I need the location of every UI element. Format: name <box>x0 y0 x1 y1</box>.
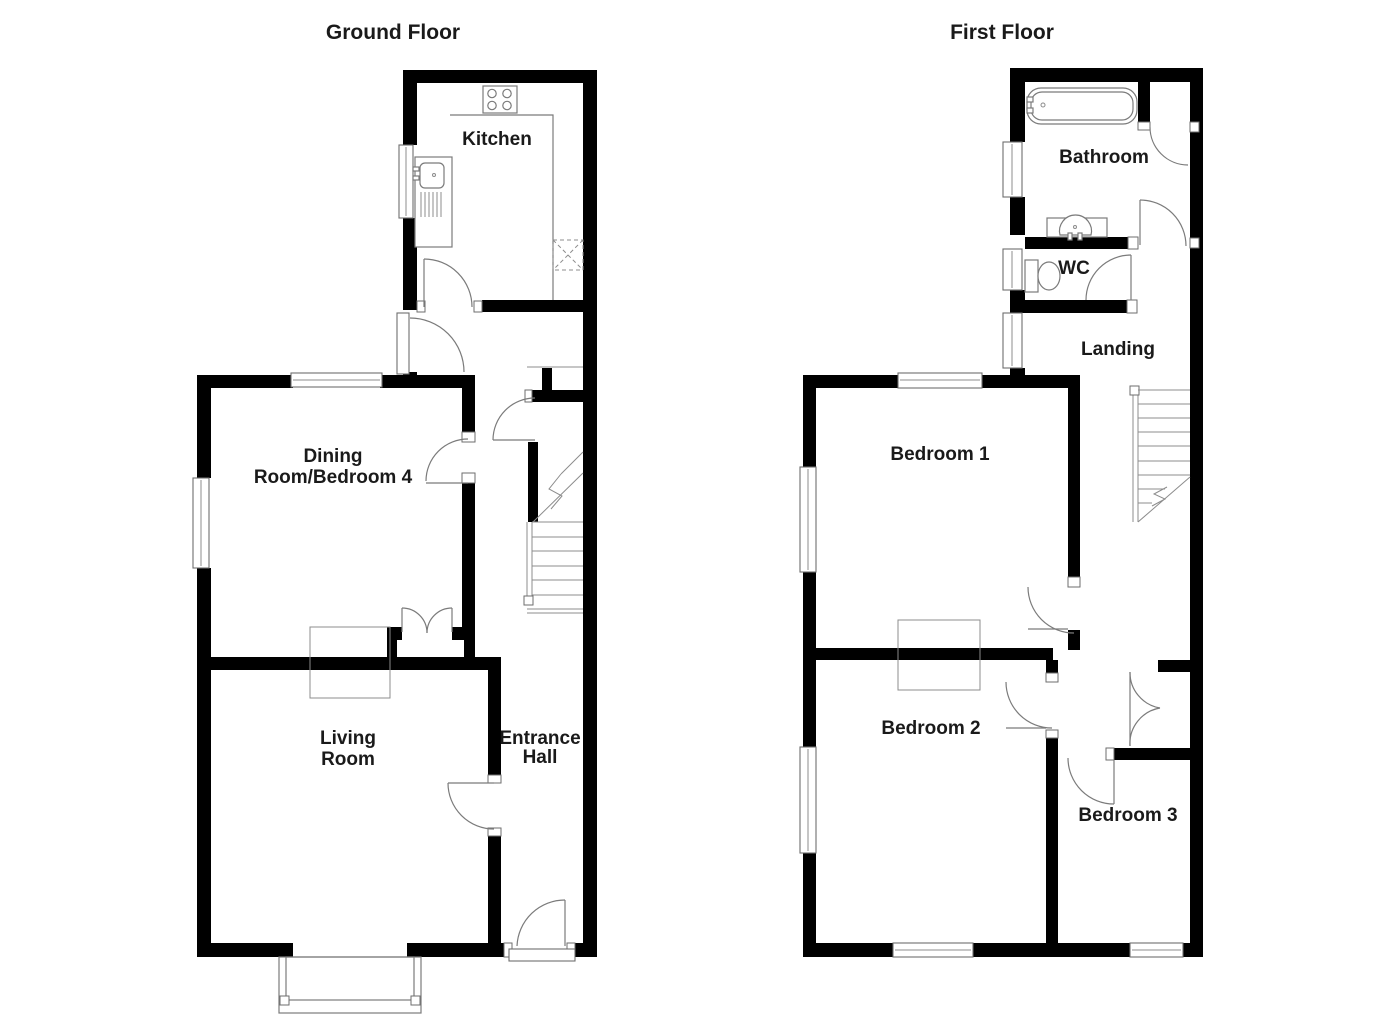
first-floor-plan: First Floor <box>800 21 1203 957</box>
bedroom2-label: Bedroom 2 <box>881 718 980 739</box>
ground-floor-title: Ground Floor <box>326 21 460 44</box>
floorplan-page: Ground Floor <box>0 0 1400 1018</box>
hall-label-line1: Entrance <box>499 728 580 749</box>
bedroom2-left-window <box>800 747 816 853</box>
bedroom1-left-window <box>800 467 816 572</box>
bedroom1-top-window <box>898 373 982 388</box>
bedroom2-door <box>1006 682 1052 728</box>
wc-door <box>1086 255 1131 300</box>
bath-icon <box>1027 88 1137 124</box>
wc-label: WC <box>1058 258 1090 279</box>
bathroom-door <box>1140 200 1186 246</box>
airing-cupboard-door <box>1150 127 1188 165</box>
kitchen-window <box>399 145 413 218</box>
side-door <box>397 313 464 374</box>
living-room-door <box>448 783 494 829</box>
first-floor-title: First Floor <box>950 21 1054 44</box>
wc-window <box>1003 249 1022 290</box>
living-label-line1: Living <box>320 728 376 749</box>
hall-label-line2: Hall <box>523 747 558 768</box>
bedroom3-label: Bedroom 3 <box>1078 805 1177 826</box>
living-label-line2: Room <box>321 749 375 770</box>
bedroom2-bottom-window <box>893 943 973 957</box>
bedroom1-label: Bedroom 1 <box>890 444 990 465</box>
hob-icon <box>483 86 517 113</box>
landing-label: Landing <box>1081 339 1155 360</box>
dining-label-line2: Room/Bedroom 4 <box>254 467 413 488</box>
bay-window <box>279 957 421 1013</box>
bathroom-label: Bathroom <box>1059 147 1149 168</box>
cupboard-double-doors <box>402 608 452 633</box>
floorplan-drawing: Ground Floor <box>0 0 1400 1018</box>
front-door <box>509 900 575 961</box>
dining-label-line1: Dining <box>303 446 362 467</box>
sink-drainer-icon <box>413 157 452 247</box>
landing-cupboard-doors <box>1130 672 1160 746</box>
dining-left-window <box>193 478 209 568</box>
ground-walls <box>197 70 597 957</box>
appliance-space-icon <box>553 240 583 270</box>
ground-floor-plan: Ground Floor <box>193 21 597 1013</box>
bedroom1-door <box>1028 587 1074 633</box>
kitchen-door <box>424 259 472 307</box>
bedroom3-bottom-window <box>1130 943 1183 957</box>
hall-inner-door <box>493 398 535 440</box>
dining-top-window <box>291 373 382 387</box>
bathroom-window <box>1003 142 1022 197</box>
landing-window <box>1003 313 1022 368</box>
bedroom3-door <box>1068 758 1114 804</box>
basin-icon <box>1047 215 1107 240</box>
kitchen-label: Kitchen <box>462 129 532 150</box>
stairs-first <box>1130 386 1190 522</box>
toilet-icon <box>1025 260 1060 292</box>
